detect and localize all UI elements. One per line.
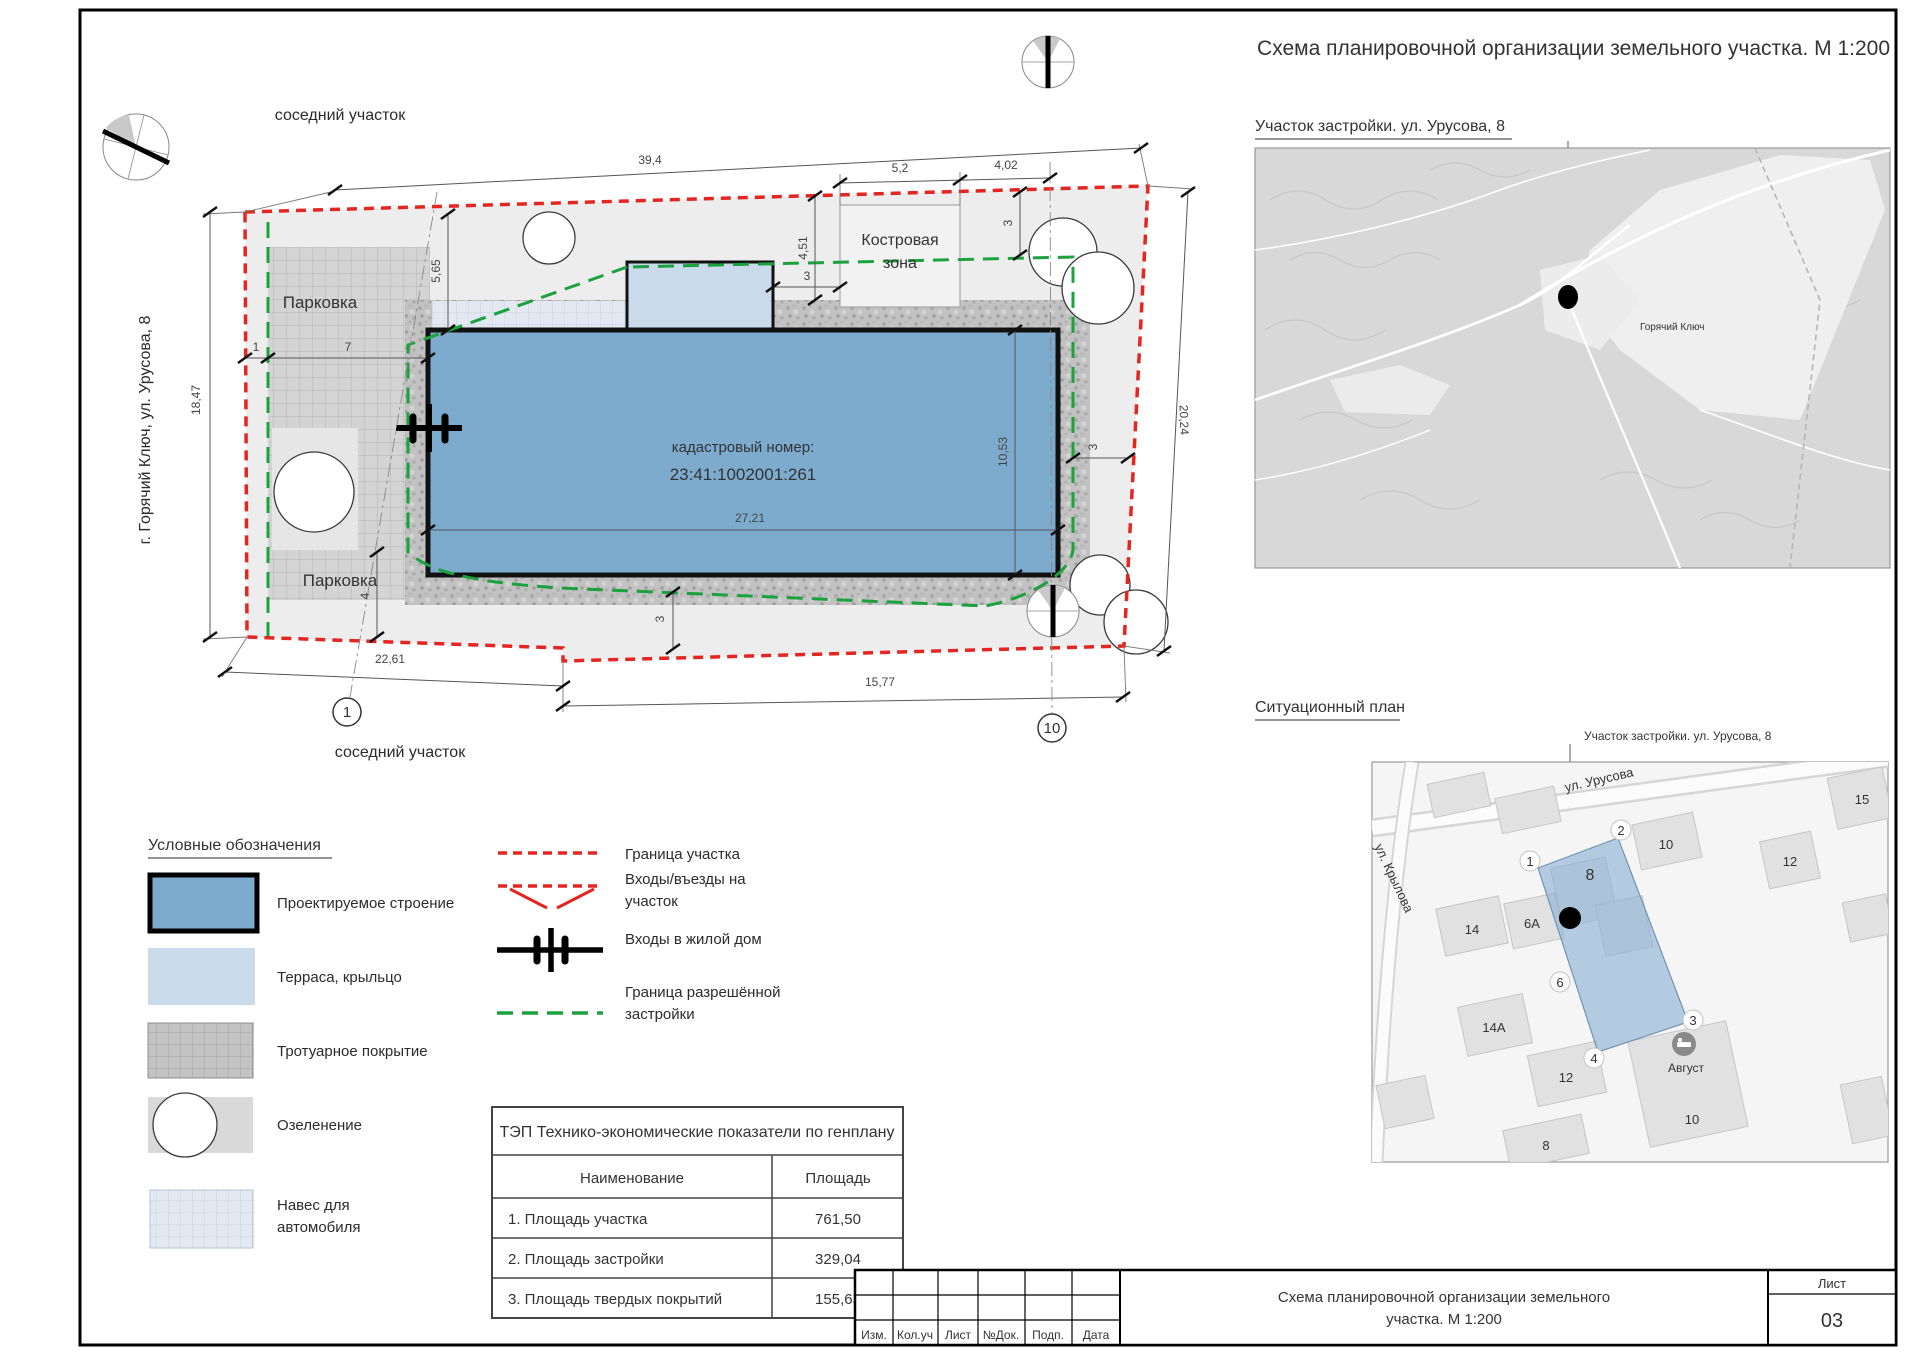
tep-title: ТЭП Технико-экономические показатели по … bbox=[500, 1124, 895, 1141]
site-marker-dot bbox=[1558, 285, 1578, 309]
situational-site-dot bbox=[1559, 907, 1581, 929]
situational-title: Ситуационный план bbox=[1255, 699, 1405, 716]
tep-row-name: 2. Площадь застройки bbox=[508, 1251, 664, 1268]
number-14a: 14А bbox=[1482, 1020, 1505, 1035]
legend-swatch-sidewalk bbox=[148, 1023, 253, 1078]
doc-title-line1: Схема планировочной организации земельно… bbox=[1278, 1289, 1610, 1306]
legend-label-construction-1: Граница разрешённой bbox=[625, 984, 780, 1001]
dim-left: 18,47 bbox=[189, 385, 203, 415]
legend-tree-icon bbox=[153, 1093, 217, 1157]
sheet-label: Лист bbox=[1818, 1276, 1846, 1291]
legend-label-house-entrance: Входы в жилой дом bbox=[625, 931, 762, 948]
terrace bbox=[627, 262, 773, 330]
cadastral-number: 23:41:1002001:261 bbox=[670, 465, 817, 484]
badge-2: 2 bbox=[1617, 823, 1624, 838]
dim-bottom-right: 15,77 bbox=[865, 675, 895, 689]
dim-3d: 3 bbox=[653, 615, 667, 622]
tep-row-name: 3. Площадь твердых покрытий bbox=[508, 1291, 722, 1308]
city-label: Горячий Ключ bbox=[1640, 322, 1704, 333]
hotel-avgust-icon bbox=[1672, 1032, 1696, 1056]
dim-451: 4,51 bbox=[796, 236, 810, 260]
col-list: Лист bbox=[945, 1328, 972, 1342]
neighbor-bottom-label: соседний участок bbox=[335, 744, 466, 761]
col-koluch: Кол.уч bbox=[897, 1328, 933, 1342]
tep-table: ТЭП Технико-экономические показатели по … bbox=[492, 1107, 903, 1318]
drawing-sheet: кадастровый номер: 23:41:1002001:261 bbox=[0, 0, 1920, 1357]
dim-bottom-left: 22,61 bbox=[375, 652, 405, 666]
col-izm: Изм. bbox=[861, 1328, 887, 1342]
col-data: Дата bbox=[1083, 1328, 1110, 1342]
badge-1: 1 bbox=[1526, 854, 1533, 869]
dim-right: 20,24 bbox=[1176, 405, 1191, 436]
col-ndok: №Док. bbox=[983, 1328, 1019, 1342]
tep-row-name: 1. Площадь участка bbox=[508, 1211, 648, 1228]
dim-7: 7 bbox=[345, 340, 352, 354]
legend-swatch-terrace bbox=[148, 948, 255, 1005]
compass-main-icon bbox=[103, 114, 169, 180]
number-10b: 10 bbox=[1685, 1112, 1699, 1127]
title-block: Изм. Кол.уч Лист №Док. Подп. Дата Схема … bbox=[855, 1270, 1896, 1345]
compass-map1-icon bbox=[1022, 36, 1074, 88]
axis-10-label: 10 bbox=[1044, 720, 1061, 737]
fire-zone-label-1: Костровая bbox=[861, 232, 938, 249]
legend-label-entries-1: Входы/въезды на bbox=[625, 871, 746, 888]
street-vertical-label: г. Горячий Ключ, ул. Урусова, 8 bbox=[137, 316, 154, 545]
legend-swatch-building bbox=[150, 875, 257, 931]
tep-row-value: 329,04 bbox=[815, 1251, 861, 1268]
legend-label-carport-1: Навес для bbox=[277, 1197, 350, 1214]
legend-label-construction-2: застройки bbox=[625, 1006, 695, 1023]
axis-markers: 1 10 bbox=[333, 698, 1066, 742]
hotel-avgust-label: Август bbox=[1668, 1061, 1705, 1075]
parking-top-label: Парковка bbox=[283, 293, 358, 312]
number-10a: 10 bbox=[1659, 837, 1673, 852]
region-map-title: Участок застройки. ул. Урусова, 8 bbox=[1255, 118, 1505, 135]
legend-label-building: Проектируемое строение bbox=[277, 895, 454, 912]
tep-col-area: Площадь bbox=[805, 1170, 870, 1187]
doc-title-line2: участка. М 1:200 bbox=[1386, 1311, 1502, 1328]
sheet-number: 03 bbox=[1821, 1310, 1843, 1332]
number-12b: 12 bbox=[1559, 1070, 1573, 1085]
legend-label-boundary: Граница участка bbox=[625, 846, 741, 863]
badge-6: 6 bbox=[1556, 975, 1563, 990]
number-12a: 12 bbox=[1783, 854, 1797, 869]
situational-map: 1 2 3 4 6 8 10 12 15 14 6А 14А 12 10 8 bbox=[1372, 758, 1894, 1170]
number-8b: 8 bbox=[1542, 1138, 1549, 1153]
site-plan: кадастровый номер: 23:41:1002001:261 bbox=[103, 107, 1195, 761]
dim-565: 5,65 bbox=[429, 259, 443, 283]
sheet-svg: кадастровый номер: 23:41:1002001:261 bbox=[0, 0, 1920, 1357]
tep-row-value: 761,50 bbox=[815, 1211, 861, 1228]
number-6a: 6А bbox=[1524, 916, 1540, 931]
fire-zone-label-2: зона bbox=[883, 255, 917, 272]
badge-3: 3 bbox=[1689, 1013, 1696, 1028]
dim-4: 4 bbox=[358, 592, 372, 599]
dim-gap: 4,02 bbox=[994, 158, 1018, 172]
neighbor-top-label: соседний участок bbox=[275, 107, 406, 124]
col-podp: Подп. bbox=[1032, 1328, 1064, 1342]
axis-1-label: 1 bbox=[343, 704, 351, 721]
region-map: Горячий Ключ bbox=[1255, 148, 1890, 568]
number-8-parcel: 8 bbox=[1586, 867, 1595, 884]
dim-building-height: 10,53 bbox=[996, 437, 1010, 467]
number-14: 14 bbox=[1465, 922, 1479, 937]
tep-col-name: Наименование bbox=[580, 1170, 684, 1187]
legend-label-terrace: Терраса, крыльцо bbox=[277, 969, 402, 986]
parking-bottom-label: Парковка bbox=[303, 571, 378, 590]
dim-fire: 5,2 bbox=[892, 161, 909, 175]
legend-label-greenery: Озеленение bbox=[277, 1117, 362, 1134]
compass-map2-icon bbox=[1027, 585, 1079, 637]
main-title: Схема планировочной организации земельно… bbox=[1257, 37, 1890, 60]
legend-label-entries-2: участок bbox=[625, 893, 678, 910]
situational-marker-label: Участок застройки. ул. Урусова, 8 bbox=[1584, 729, 1772, 743]
legend-label-carport-2: автомобиля bbox=[277, 1219, 361, 1236]
dim-1: 1 bbox=[253, 340, 260, 354]
dim-3c: 3 bbox=[1086, 443, 1100, 450]
legend-entry-arrow-right bbox=[557, 889, 594, 908]
legend-title: Условные обозначения bbox=[148, 837, 321, 854]
dim-top: 39,4 bbox=[638, 153, 662, 167]
cadastral-label: кадастровый номер: bbox=[672, 439, 814, 456]
dim-3b: 3 bbox=[1001, 219, 1015, 226]
dim-building-width: 27,21 bbox=[735, 511, 765, 525]
legend-label-sidewalk: Тротуарное покрытие bbox=[277, 1043, 428, 1060]
legend-swatch-carport bbox=[150, 1190, 253, 1248]
dim-3a: 3 bbox=[804, 269, 811, 283]
legend-house-entrance-icon bbox=[497, 928, 603, 972]
badge-4: 4 bbox=[1590, 1051, 1597, 1066]
legend-entry-arrow-left bbox=[510, 889, 547, 908]
number-15: 15 bbox=[1855, 792, 1869, 807]
